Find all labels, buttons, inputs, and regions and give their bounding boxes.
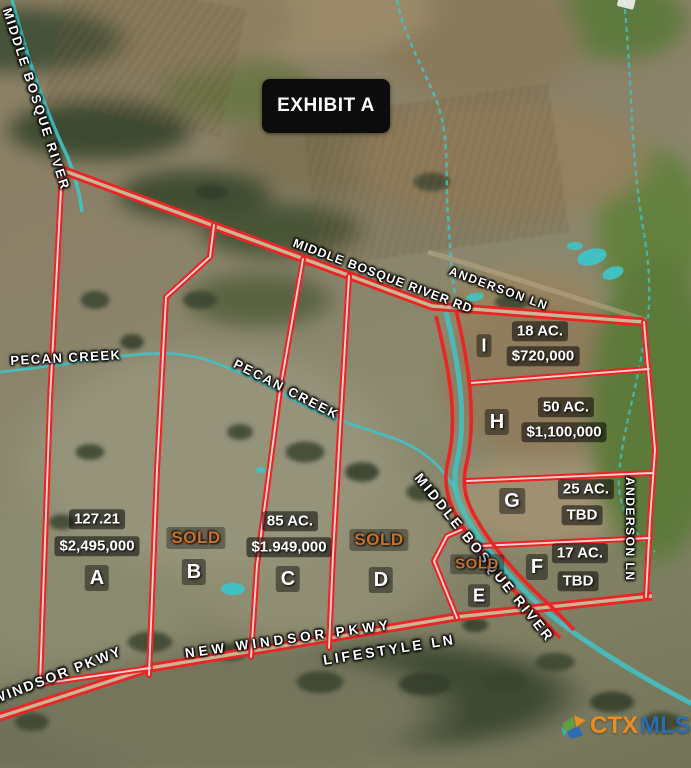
parcel-f-letter: F (526, 554, 548, 580)
parcel-c-acreage: 85 AC. (262, 511, 318, 531)
creek-top-right-path (624, 0, 649, 318)
parcel-g-acreage: 25 AC. (558, 479, 614, 499)
parcel-i-letter: I (476, 334, 491, 357)
parcel-i-price: $720,000 (507, 346, 580, 366)
pecan-creek-path (0, 353, 455, 490)
divider-a-b-core (149, 225, 214, 675)
parcel-h-acreage: 50 AC. (538, 397, 594, 417)
watermark-ctx-text: CTX (590, 712, 638, 740)
pond (567, 242, 583, 250)
parcel-a-price: $2,495,000 (54, 536, 139, 556)
parcel-a-acreage: 127.21 (69, 509, 125, 529)
parcel-b-letter: B (182, 559, 206, 585)
pond (256, 467, 266, 473)
divider-b-c (251, 259, 303, 657)
parcel-b-status: SOLD (166, 527, 225, 549)
ctxmls-logo-icon (560, 712, 588, 740)
east-boundary (644, 322, 655, 597)
pond (601, 264, 626, 283)
exhibit-title: EXHIBIT A (277, 95, 375, 117)
parcel-e-status: SOLD (450, 554, 504, 574)
parcel-i-acreage: 18 AC. (512, 321, 568, 341)
parcel-a-letter: A (85, 565, 109, 591)
parcel-e-letter: E (468, 584, 490, 607)
parcel-h-price: $1,100,000 (521, 422, 606, 442)
creek-top-center-path (397, 0, 456, 300)
parcel-d-status: SOLD (349, 529, 408, 551)
parcel-g-letter: G (499, 488, 525, 514)
divider-c-d-core (329, 276, 349, 648)
parcel-g-price: TBD (562, 505, 603, 525)
watermark-mls-text: MLS (640, 712, 691, 740)
exhibit-parcel-map: MIDDLE BOSQUE RIVER MIDDLE BOSQUE RIVER … (0, 0, 691, 768)
middle-bosque-river-rd-line (62, 170, 644, 322)
parcel-e-west (434, 536, 457, 618)
divider-i-h-core (471, 369, 649, 383)
parcel-c-letter: C (276, 566, 300, 592)
exhibit-title-box: EXHIBIT A (262, 79, 390, 133)
road-label-anderson-ln-right: ANDERSON LN (623, 477, 637, 582)
parcel-d-letter: D (369, 567, 393, 593)
middle-bosque-river-rd-center (62, 170, 644, 322)
parcel-h-letter: H (485, 409, 509, 435)
pond (221, 583, 245, 595)
ctxmls-watermark: CTXMLS (560, 712, 691, 740)
parcel-c-price: $1.949,000 (246, 537, 331, 557)
parcel-f-acreage: 17 AC. (552, 543, 608, 563)
parcel-f-price: TBD (558, 571, 599, 591)
